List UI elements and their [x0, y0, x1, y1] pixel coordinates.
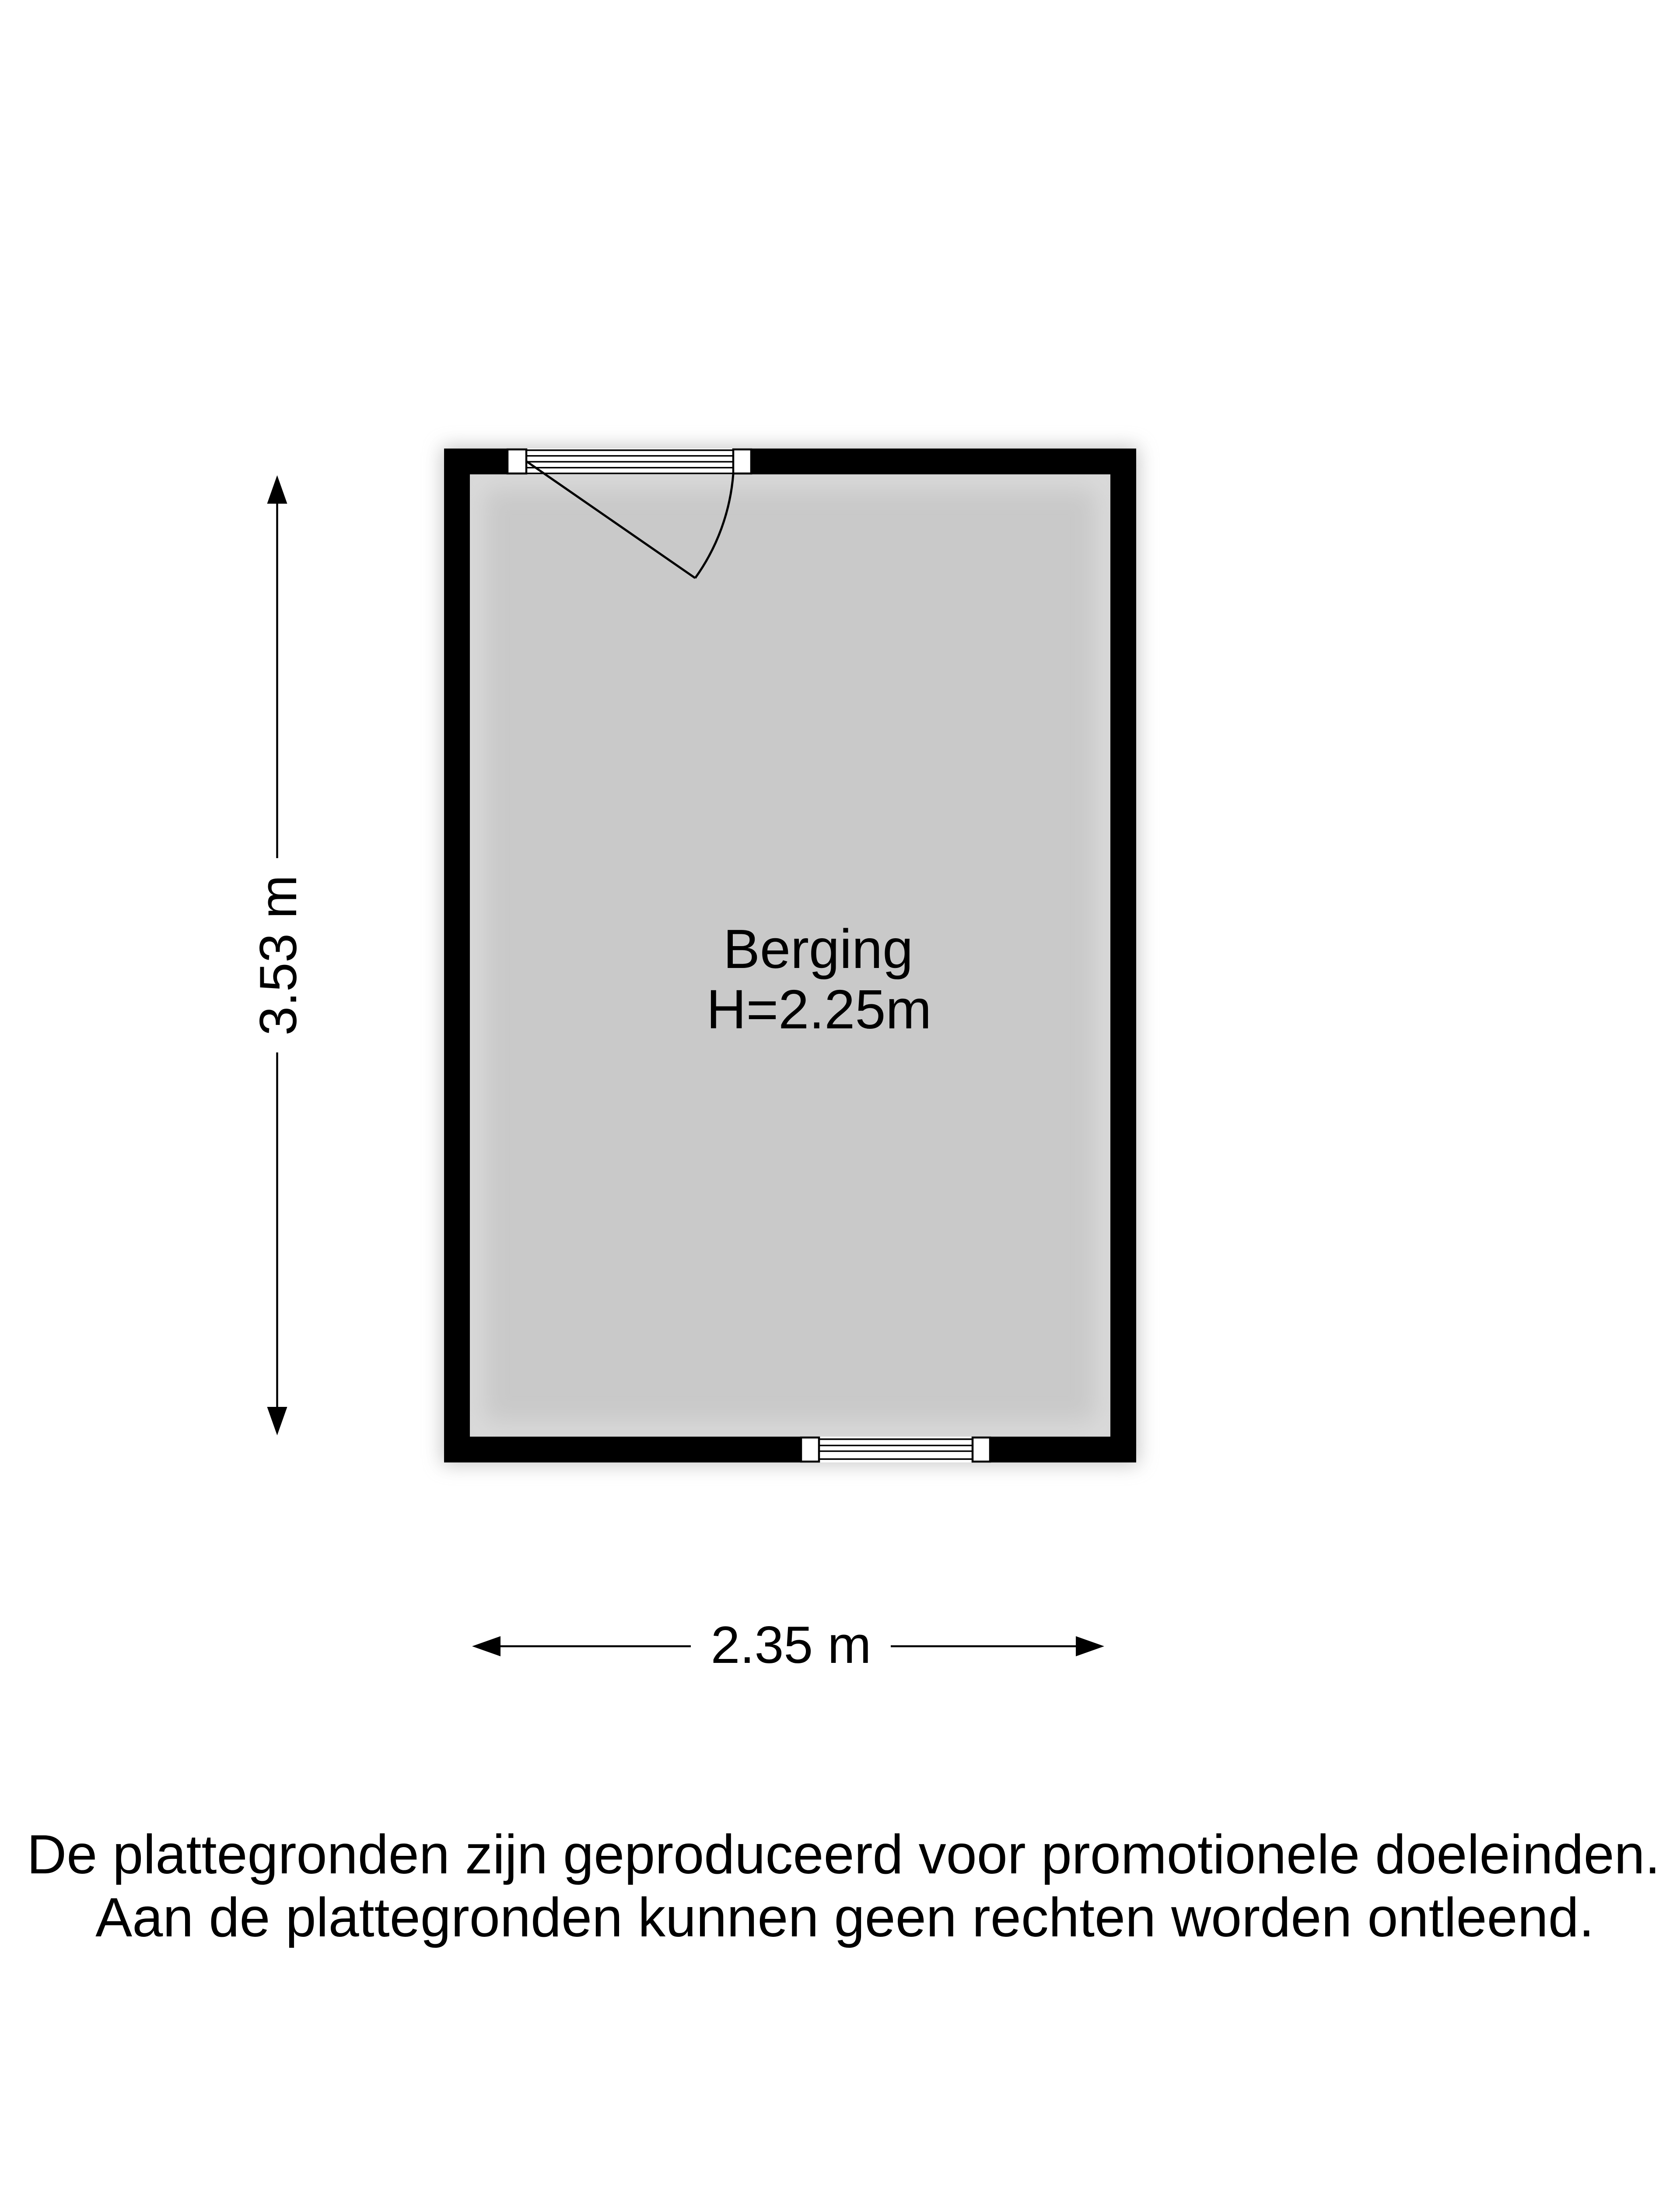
svg-text:Aan de plattegronden kunnen ge: Aan de plattegronden kunnen geen rechten… [95, 1886, 1594, 1948]
svg-text:2.35 m: 2.35 m [711, 1616, 871, 1674]
svg-text:H=2.25m: H=2.25m [707, 978, 932, 1040]
svg-text:3.53 m: 3.53 m [249, 875, 308, 1036]
svg-text:De plattegronden zijn geproduc: De plattegronden zijn geproduceerd voor … [27, 1823, 1660, 1885]
svg-text:Berging: Berging [723, 918, 913, 980]
